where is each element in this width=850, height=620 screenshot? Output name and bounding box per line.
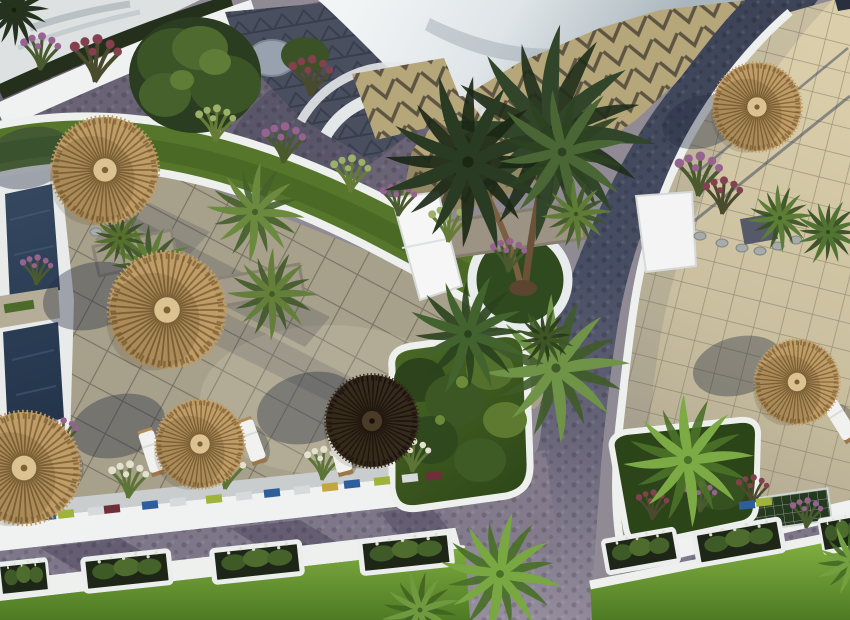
aerial-resort-render [0, 0, 850, 620]
accent-block [170, 497, 187, 507]
accent-block [206, 494, 223, 504]
rock [754, 247, 766, 255]
accent-block [756, 497, 773, 507]
umbrella-tan [50, 116, 159, 225]
accent-block [739, 500, 756, 510]
umbrella-tan [154, 400, 244, 490]
accent-block [402, 473, 419, 483]
rock [716, 239, 728, 247]
accent-block [142, 500, 159, 510]
rock [736, 244, 748, 252]
accent-block [264, 488, 281, 498]
accent-block [88, 506, 105, 516]
white-shade-canopy-2 [636, 192, 696, 272]
umbrella-tan [107, 251, 226, 370]
accent-block [236, 491, 253, 501]
umbrella-tan [753, 340, 839, 426]
umbrella-tan [711, 63, 801, 153]
planter-box [0, 558, 50, 596]
accent-block [344, 479, 361, 489]
accent-block [104, 504, 121, 514]
accent-block [426, 471, 443, 481]
accent-block [322, 482, 339, 492]
accent-block [294, 485, 311, 495]
scene-canvas [0, 0, 850, 620]
umbrella-dark [324, 375, 418, 469]
accent-block [374, 476, 391, 486]
rock [694, 232, 706, 240]
